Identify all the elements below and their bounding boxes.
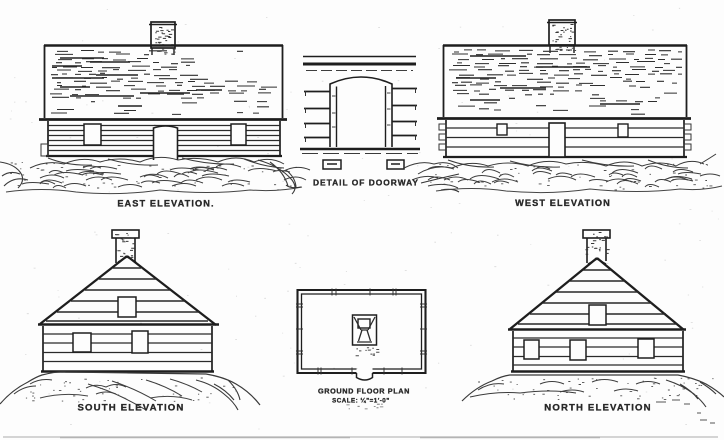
svg-text:WEST ELEVATION: WEST ELEVATION	[515, 198, 611, 208]
svg-text:SOUTH ELEVATION: SOUTH ELEVATION	[78, 403, 185, 414]
svg-text:EAST ELEVATION.: EAST ELEVATION.	[117, 199, 214, 209]
svg-text:DETAIL OF DOORWAY: DETAIL OF DOORWAY	[313, 178, 419, 188]
svg-text:GROUND FLOOR PLAN: GROUND FLOOR PLAN	[318, 387, 410, 396]
svg-text:SCALE: ¼”=1′-0”: SCALE: ¼”=1′-0”	[332, 398, 390, 405]
svg-text:NORTH ELEVATION: NORTH ELEVATION	[544, 403, 652, 414]
